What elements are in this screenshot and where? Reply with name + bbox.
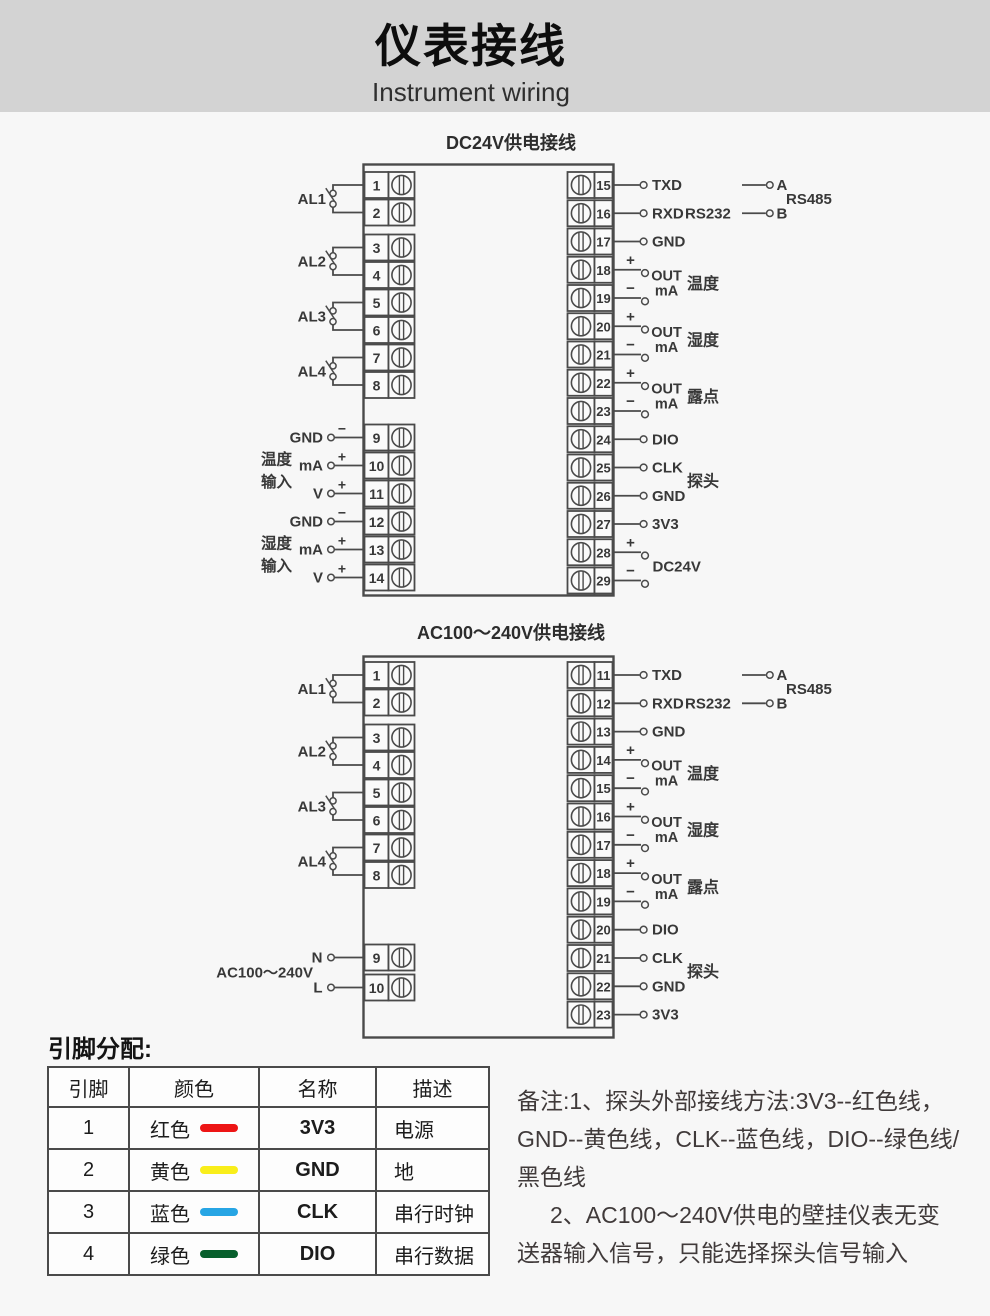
terminal-dot-icon xyxy=(328,434,335,441)
screw-icon xyxy=(571,835,590,854)
out-label: OUT xyxy=(651,759,682,775)
dc-terminal-26: 26 xyxy=(568,483,613,509)
ac-terminal-14: 14 xyxy=(568,747,613,773)
mains-voltage-label: AC100～240V xyxy=(216,965,313,982)
screw-icon xyxy=(571,288,590,307)
pin-number: 7 xyxy=(373,840,381,856)
ac-al1-group: AL1 xyxy=(298,675,365,703)
terminal-dot-icon xyxy=(640,521,647,528)
terminal-dot-icon xyxy=(642,411,649,418)
pin-number: 22 xyxy=(596,979,610,994)
rs485-bus-label: RS485 xyxy=(786,681,832,698)
terminal-dot-icon xyxy=(767,210,774,217)
column-header: 引脚 xyxy=(48,1067,129,1107)
al-label: AL3 xyxy=(298,798,326,815)
dc-terminal-10: 10 xyxy=(365,453,415,479)
pin-number: 15 xyxy=(596,178,610,193)
switch-contact-icon xyxy=(330,754,336,760)
dc-terminal-19: 19 xyxy=(568,285,613,311)
terminal-dot-icon xyxy=(642,552,649,559)
dc-terminal-12: 12 xyxy=(365,509,415,535)
pin-number: 6 xyxy=(373,323,381,339)
dc-terminal-9: 9 xyxy=(365,425,415,451)
terminal-dot-icon xyxy=(642,383,649,390)
ac-terminal-21: 21 xyxy=(568,945,613,971)
terminal-dot-icon xyxy=(642,298,649,305)
terminal-dot-icon xyxy=(328,490,335,497)
pin-number: 6 xyxy=(373,813,381,829)
signal-label: GND xyxy=(652,724,686,741)
screw-icon xyxy=(392,484,411,503)
screw-icon xyxy=(392,728,411,747)
header-text-block: 仪表接线 Instrument wiring xyxy=(0,0,966,108)
screw-icon xyxy=(571,948,590,967)
pin-number: 11 xyxy=(597,668,611,683)
note-line: 送器输入信号，只能选择探头信号输入 xyxy=(517,1234,987,1272)
screw-icon xyxy=(392,948,411,967)
ac-terminal-22: 22 xyxy=(568,973,613,999)
input-group-label: 温度 xyxy=(261,450,293,469)
ac-diagram-title: AC100～240V供电接线 xyxy=(391,619,631,645)
color-swatch-icon xyxy=(200,1166,238,1174)
dc-terminal-4: 4 xyxy=(365,262,415,288)
input-group-label: 输入 xyxy=(261,472,293,491)
channel-label: 湿度 xyxy=(686,330,720,349)
terminal-dot-icon xyxy=(328,954,335,961)
screw-icon xyxy=(392,456,411,475)
signal-label: DIO xyxy=(652,922,679,939)
terminal-dot-icon xyxy=(640,700,647,707)
pin-number: 14 xyxy=(596,753,611,768)
unit-label: mA xyxy=(655,340,679,356)
pin-number: 4 xyxy=(373,268,381,284)
screw-icon xyxy=(392,865,411,884)
screw-icon xyxy=(571,920,590,939)
terminal-dot-icon xyxy=(767,672,774,679)
dc-rightlabel-27: 3V3 xyxy=(614,516,679,533)
screw-icon xyxy=(392,838,411,857)
dc-input-group-0: GND−mA+V+温度输入 xyxy=(261,421,365,503)
dc-rightlabel-28: + xyxy=(614,534,649,559)
pin-number: 4 xyxy=(373,758,381,774)
header-banner: 仪表接线 Instrument wiring xyxy=(0,0,990,112)
input-label: mA xyxy=(299,458,323,475)
signal-name-cell: GND xyxy=(259,1149,376,1191)
input-label: mA xyxy=(299,542,323,559)
pin-number: 1 xyxy=(373,178,381,194)
pin-number: 16 xyxy=(596,206,610,221)
dc-rightlabel-21: − xyxy=(614,337,649,362)
terminal-dot-icon xyxy=(328,518,335,525)
screw-icon xyxy=(571,260,590,279)
ac-terminal-5: 5 xyxy=(365,780,415,806)
dc-al1-group: AL1 xyxy=(298,185,365,213)
ac-terminal-13: 13 xyxy=(568,719,613,745)
terminal-dot-icon xyxy=(642,901,649,908)
pin-number: 10 xyxy=(369,458,385,474)
ac-terminal-6: 6 xyxy=(365,807,415,833)
dc-rs485-group: ABRS485 xyxy=(742,177,832,222)
signal-label: GND xyxy=(652,488,686,505)
screw-icon xyxy=(392,175,411,194)
dc-terminal-5: 5 xyxy=(365,290,415,316)
switch-contact-icon xyxy=(330,809,336,815)
pin-cell: 4 xyxy=(48,1233,129,1275)
dc-rightlabel-29: − xyxy=(614,563,649,588)
dc-diagram-title: DC24V供电接线 xyxy=(391,129,631,155)
pin-number: 19 xyxy=(596,894,610,909)
table-row: 2黄色GND地 xyxy=(48,1149,489,1191)
al-label: AL3 xyxy=(298,308,326,325)
screw-icon xyxy=(571,977,590,996)
dc-rightlabel-16: RXDRS232 xyxy=(614,205,731,222)
signal-label: RXD xyxy=(652,205,684,222)
color-swatch-icon xyxy=(200,1124,238,1132)
terminal-dot-icon xyxy=(328,462,335,469)
screw-icon xyxy=(571,373,590,392)
ac-terminal-11: 11 xyxy=(568,662,613,688)
terminal-dot-icon xyxy=(642,326,649,333)
screw-icon xyxy=(392,783,411,802)
rs485-bus-label: RS485 xyxy=(786,191,832,208)
pin-number: 27 xyxy=(596,517,610,532)
polarity-sign: − xyxy=(626,280,635,297)
screw-icon xyxy=(571,458,590,477)
ac-terminal-15: 15 xyxy=(568,775,613,801)
dc-terminal-22: 22 xyxy=(568,370,613,396)
unit-label: mA xyxy=(655,283,679,299)
al-label: AL4 xyxy=(298,363,327,380)
ac-rs485-group: ABRS485 xyxy=(742,667,832,712)
column-header: 名称 xyxy=(259,1067,376,1107)
ac-out-group-0: OUTmA温度 xyxy=(651,759,720,790)
pin-number: 2 xyxy=(373,205,381,221)
out-label: OUT xyxy=(651,381,682,397)
screw-icon xyxy=(392,203,411,222)
table-header-row: 引脚颜色名称描述 xyxy=(48,1067,489,1107)
terminal-dot-icon xyxy=(640,926,647,933)
dc-al3-group: AL3 xyxy=(298,303,365,331)
ac-terminal-20: 20 xyxy=(568,917,613,943)
screw-icon xyxy=(392,810,411,829)
screw-icon xyxy=(571,694,590,713)
ac-rightlabel-18: + xyxy=(614,855,649,880)
dc-terminal-25: 25 xyxy=(568,455,613,481)
channel-label: 露点 xyxy=(687,387,719,406)
dc-terminal-2: 2 xyxy=(365,200,415,226)
polarity-sign: − xyxy=(626,883,635,900)
screw-icon xyxy=(571,317,590,336)
column-header: 描述 xyxy=(376,1067,489,1107)
pin-number: 1 xyxy=(373,668,381,684)
pin-assignment-table: 引脚颜色名称描述1红色3V3电源2黄色GND地3蓝色CLK串行时钟4绿色DIO串… xyxy=(47,1066,490,1276)
signal-name-cell: 3V3 xyxy=(259,1107,376,1149)
ac-rightlabel-19: − xyxy=(614,883,649,908)
ac-rightlabel-16: + xyxy=(614,799,649,824)
pin-number: 13 xyxy=(596,725,610,740)
page-root: 仪表接线 Instrument wiring 12345678910111213… xyxy=(0,0,990,1316)
pin-number: 9 xyxy=(373,950,381,966)
ac-rightlabel-15: − xyxy=(614,770,649,795)
polarity-sign: + xyxy=(626,534,635,551)
dc-al4-group: AL4 xyxy=(298,358,365,386)
screw-icon xyxy=(571,430,590,449)
unit-label: mA xyxy=(655,774,679,790)
screw-icon xyxy=(392,665,411,684)
terminal-dot-icon xyxy=(640,983,647,990)
terminal-dot-icon xyxy=(640,955,647,962)
dc-rightlabel-24: DIO xyxy=(614,431,680,448)
pin-number: 14 xyxy=(369,570,385,586)
pin-number: 11 xyxy=(369,486,384,502)
table-row: 3蓝色CLK串行时钟 xyxy=(48,1191,489,1233)
polarity-sign: − xyxy=(626,563,635,580)
ac-terminal-17: 17 xyxy=(568,832,613,858)
polarity-sign: + xyxy=(626,365,635,382)
ac-terminal-9: 9 xyxy=(365,945,415,971)
pin-number: 26 xyxy=(596,489,610,504)
polarity-sign: − xyxy=(626,827,635,844)
signal-label: CLK xyxy=(652,460,683,477)
pin-number: 17 xyxy=(596,235,610,250)
probe-label: 探头 xyxy=(687,962,719,981)
ac-rightlabel-13: GND xyxy=(614,724,686,741)
bus-tag: RS232 xyxy=(685,695,731,712)
polarity-sign: + xyxy=(338,449,346,465)
ac-terminal-2: 2 xyxy=(365,690,415,716)
screw-icon xyxy=(571,807,590,826)
polarity-sign: + xyxy=(626,308,635,325)
dc-rightlabel-18: + xyxy=(614,252,649,277)
signal-label: RXD xyxy=(652,695,684,712)
al-label: AL1 xyxy=(298,681,326,698)
polarity-sign: − xyxy=(626,337,635,354)
dc-rightlabel-22: + xyxy=(614,365,649,390)
terminal-dot-icon xyxy=(767,182,774,189)
color-swatch-icon xyxy=(200,1208,238,1216)
channel-label: 露点 xyxy=(687,877,719,896)
polarity-sign: − xyxy=(338,505,346,521)
screw-icon xyxy=(571,750,590,769)
screw-icon xyxy=(571,486,590,505)
pin-cell: 3 xyxy=(48,1191,129,1233)
polarity-sign: + xyxy=(626,252,635,269)
unit-label: mA xyxy=(655,887,679,903)
dc-terminal-15: 15 xyxy=(568,172,613,198)
out-label: OUT xyxy=(651,815,682,831)
pin-number: 8 xyxy=(373,378,381,394)
terminal-dot-icon xyxy=(328,546,335,553)
pin-number: 13 xyxy=(369,542,385,558)
note-line: 黑色线 xyxy=(517,1158,987,1196)
input-label: GND xyxy=(290,514,324,531)
terminal-dot-icon xyxy=(767,700,774,707)
screw-icon xyxy=(392,293,411,312)
screw-icon xyxy=(571,1005,590,1024)
pin-number: 18 xyxy=(596,866,610,881)
dc-out-group-1: OUTmA湿度 xyxy=(651,325,720,356)
pin-number: 12 xyxy=(369,514,385,530)
ac-rightlabel-23: 3V3 xyxy=(614,1007,679,1024)
polarity-sign: + xyxy=(626,855,635,872)
screw-icon xyxy=(392,428,411,447)
dc-rightlabel-25: CLK xyxy=(614,460,683,477)
signal-label: CLK xyxy=(652,950,683,967)
out-label: OUT xyxy=(651,872,682,888)
terminal-dot-icon xyxy=(642,788,649,795)
pin-number: 28 xyxy=(596,545,610,560)
table-row: 1红色3V3电源 xyxy=(48,1107,489,1149)
screw-icon xyxy=(392,238,411,257)
screw-icon xyxy=(392,512,411,531)
pin-number: 21 xyxy=(596,951,610,966)
note-line: 备注:1、探头外部接线方法:3V3--红色线， xyxy=(517,1082,987,1120)
page-subtitle: Instrument wiring xyxy=(0,77,966,108)
ac-terminal-10: 10 xyxy=(365,975,415,1001)
pin-number: 5 xyxy=(373,295,381,311)
screw-icon xyxy=(571,779,590,798)
terminal-dot-icon xyxy=(328,574,335,581)
screw-icon xyxy=(571,175,590,194)
switch-contact-icon xyxy=(330,374,336,380)
notes-block: 备注:1、探头外部接线方法:3V3--红色线，GND--黄色线，CLK--蓝色线… xyxy=(517,1082,987,1272)
bus-tag: RS232 xyxy=(685,205,731,222)
color-name: 黄色 xyxy=(150,1162,190,1184)
screw-icon xyxy=(571,543,590,562)
screw-icon xyxy=(392,693,411,712)
dc-terminal-24: 24 xyxy=(568,426,613,452)
terminal-dot-icon xyxy=(642,845,649,852)
screw-icon xyxy=(571,514,590,533)
pin-number: 7 xyxy=(373,350,381,366)
polarity-sign: + xyxy=(338,561,346,577)
terminal-dot-icon xyxy=(640,492,647,499)
ac-mains-group: NLAC100～240V xyxy=(216,950,364,997)
input-group-label: 输入 xyxy=(261,556,293,575)
color-name: 蓝色 xyxy=(150,1204,190,1226)
ac-rightlabel-17: − xyxy=(614,827,649,852)
ac-terminal-1: 1 xyxy=(365,662,415,688)
terminal-dot-icon xyxy=(640,238,647,245)
polarity-sign: − xyxy=(626,770,635,787)
screw-icon xyxy=(392,568,411,587)
out-label: OUT xyxy=(651,325,682,341)
page-title: 仪表接线 xyxy=(0,10,966,76)
signal-label: TXD xyxy=(652,667,682,684)
color-cell: 红色 xyxy=(129,1107,259,1149)
dc-diagram-svg: 1234567891011121314151617181920212223242… xyxy=(0,118,990,608)
dc-rightlabel-19: − xyxy=(614,280,649,305)
pin-number: 3 xyxy=(373,730,381,746)
screw-icon xyxy=(571,722,590,741)
pin-number: 23 xyxy=(596,404,610,419)
pin-number: 25 xyxy=(596,461,610,476)
al-label: AL2 xyxy=(298,253,326,270)
ac-terminal-16: 16 xyxy=(568,804,613,830)
pin-number: 10 xyxy=(369,980,385,996)
pin-number: 16 xyxy=(596,810,610,825)
ac-terminal-18: 18 xyxy=(568,860,613,886)
dc-terminal-7: 7 xyxy=(365,345,415,371)
ac-rightlabel-20: DIO xyxy=(614,922,680,939)
screw-icon xyxy=(392,375,411,394)
pin-number: 20 xyxy=(596,319,610,334)
terminal-dot-icon xyxy=(640,672,647,679)
terminal-dot-icon xyxy=(642,816,649,823)
dc-terminal-17: 17 xyxy=(568,229,613,255)
pin-number: 22 xyxy=(596,376,610,391)
terminal-dot-icon xyxy=(640,210,647,217)
al-label: AL4 xyxy=(298,853,327,870)
terminal-dot-icon xyxy=(642,760,649,767)
screw-icon xyxy=(392,755,411,774)
dc-terminal-8: 8 xyxy=(365,372,415,398)
signal-name-cell: CLK xyxy=(259,1191,376,1233)
dc-input-group-1: GND−mA+V+湿度输入 xyxy=(260,505,365,587)
description-cell: 串行时钟 xyxy=(376,1191,489,1233)
color-name: 绿色 xyxy=(150,1246,190,1268)
note-line: GND--黄色线，CLK--蓝色线，DIO--绿色线/ xyxy=(517,1120,987,1158)
polarity-sign: + xyxy=(626,742,635,759)
dc-out-group-2: OUTmA露点 xyxy=(651,381,719,412)
switch-contact-icon xyxy=(330,864,336,870)
pin-number: 19 xyxy=(596,291,610,306)
al-label: AL1 xyxy=(298,191,326,208)
terminal-dot-icon xyxy=(640,1011,647,1018)
dc-rightlabel-15: TXD xyxy=(614,177,683,194)
screw-icon xyxy=(571,204,590,223)
channel-label: 温度 xyxy=(686,764,720,783)
color-name: 红色 xyxy=(150,1120,190,1142)
pin-number: 8 xyxy=(373,868,381,884)
table-row: 4绿色DIO串行数据 xyxy=(48,1233,489,1275)
terminal-dot-icon xyxy=(640,464,647,471)
color-swatch-icon xyxy=(200,1250,238,1258)
pin-number: 2 xyxy=(373,695,381,711)
ac-out-group-1: OUTmA湿度 xyxy=(651,815,720,846)
terminal-dot-icon xyxy=(640,436,647,443)
dc-rightlabel-26: GND xyxy=(614,488,686,505)
dc-terminal-20: 20 xyxy=(568,313,613,339)
dc-out-group-0: OUTmA温度 xyxy=(651,268,720,299)
ac-terminal-4: 4 xyxy=(365,752,415,778)
ac-terminal-12: 12 xyxy=(568,690,613,716)
polarity-sign: − xyxy=(626,393,635,410)
description-cell: 串行数据 xyxy=(376,1233,489,1275)
pin-number: 3 xyxy=(373,240,381,256)
column-header: 颜色 xyxy=(129,1067,259,1107)
ac-terminal-8: 8 xyxy=(365,862,415,888)
screw-icon xyxy=(392,540,411,559)
ac-rightlabel-14: + xyxy=(614,742,649,767)
probe-label: 探头 xyxy=(687,472,719,491)
channel-label: 湿度 xyxy=(686,821,720,840)
dc-terminal-1: 1 xyxy=(365,172,415,198)
dc-terminal-6: 6 xyxy=(365,317,415,343)
ac-rightlabel-11: TXD xyxy=(614,667,683,684)
ac-out-group-2: OUTmA露点 xyxy=(651,872,719,903)
screw-icon xyxy=(392,265,411,284)
input-label: V xyxy=(313,486,323,503)
screw-icon xyxy=(571,401,590,420)
pin-number: 9 xyxy=(373,430,381,446)
pin-number: 21 xyxy=(596,348,610,363)
unit-label: mA xyxy=(655,396,679,412)
ac-rightlabel-12: RXDRS232 xyxy=(614,695,731,712)
ac-terminal-23: 23 xyxy=(568,1002,613,1028)
pin-cell: 2 xyxy=(48,1149,129,1191)
description-cell: 地 xyxy=(376,1149,489,1191)
